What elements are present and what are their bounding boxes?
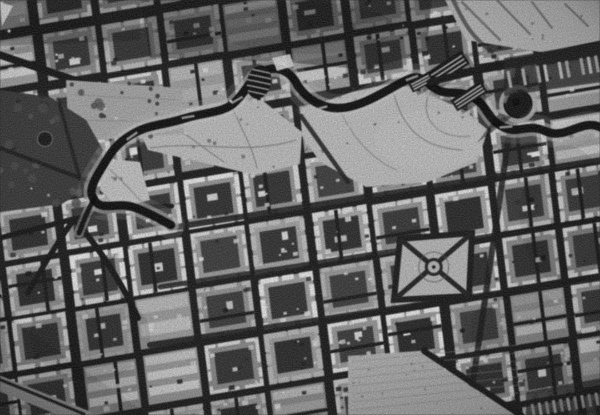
aerial-photograph: [0, 0, 600, 415]
aerial-photo-frame: [0, 0, 600, 415]
vignette: [0, 0, 600, 415]
